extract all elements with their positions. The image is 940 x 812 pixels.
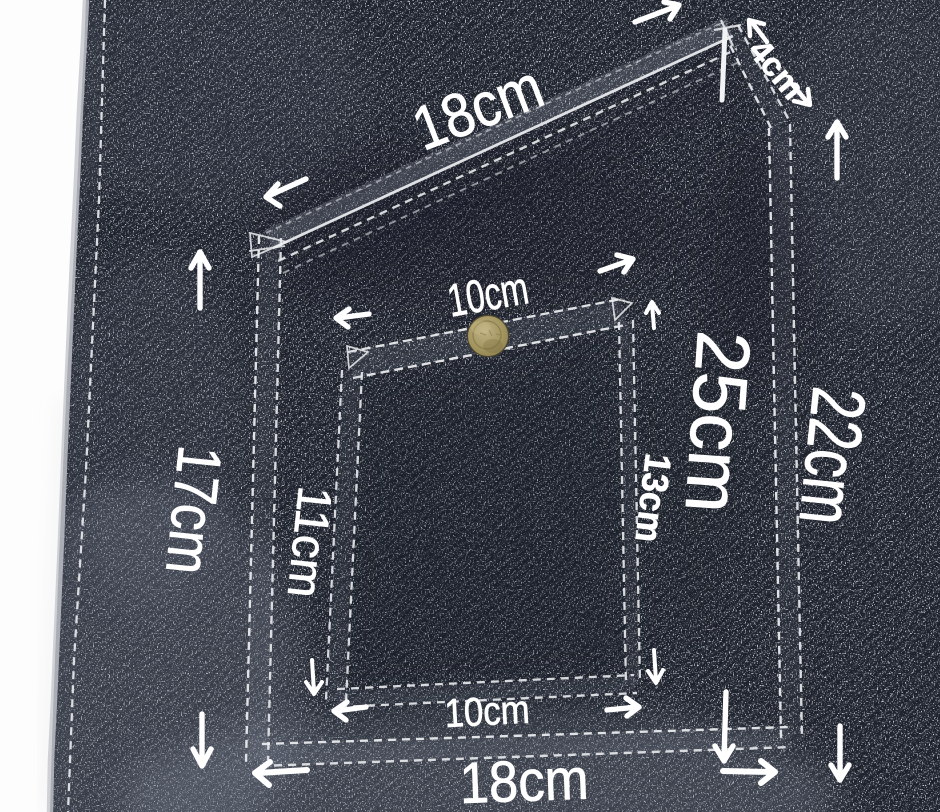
svg-text:10cm: 10cm <box>443 686 530 735</box>
svg-text:25cm: 25cm <box>669 328 766 516</box>
svg-text:17cm: 17cm <box>152 442 234 577</box>
svg-text:18cm: 18cm <box>458 746 589 812</box>
svg-text:22cm: 22cm <box>782 383 881 529</box>
